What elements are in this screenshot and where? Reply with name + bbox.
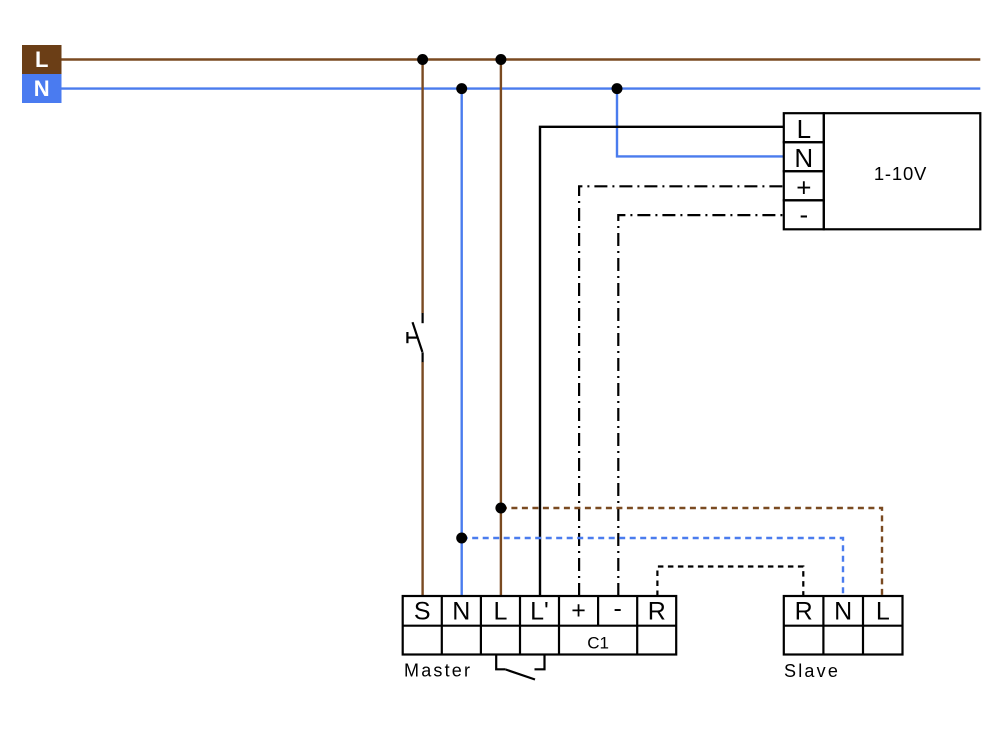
svg-text:+: + (571, 597, 586, 625)
svg-text:N: N (794, 143, 813, 173)
svg-text:N: N (452, 598, 470, 626)
svg-text:N: N (834, 598, 852, 626)
svg-text:L: L (797, 114, 811, 144)
svg-text:+: + (796, 173, 811, 203)
svg-text:1-10V: 1-10V (874, 163, 927, 184)
svg-text:-: - (799, 200, 808, 230)
svg-text:C1: C1 (587, 634, 609, 653)
svg-text:N: N (34, 76, 50, 101)
svg-text:Slave: Slave (784, 661, 840, 681)
svg-text:-: - (614, 595, 622, 623)
svg-text:R: R (648, 598, 666, 626)
svg-text:L: L (35, 47, 48, 72)
svg-text:L: L (876, 598, 890, 626)
svg-text:L': L' (530, 598, 549, 626)
svg-text:L: L (493, 598, 507, 626)
svg-text:S: S (414, 598, 431, 626)
svg-text:Master: Master (404, 661, 472, 681)
svg-text:R: R (795, 598, 813, 626)
